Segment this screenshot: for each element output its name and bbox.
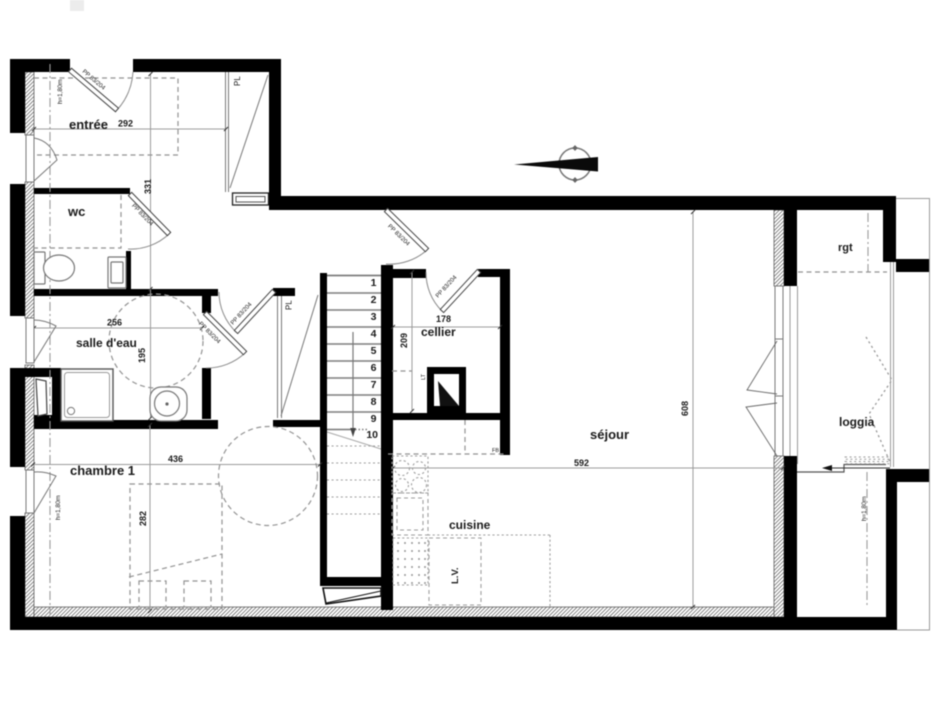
svg-text:4: 4 (371, 328, 377, 340)
svg-text:wc: wc (67, 204, 85, 219)
svg-text:PL: PL (233, 76, 242, 86)
svg-text:436: 436 (168, 454, 183, 464)
svg-text:5: 5 (371, 345, 377, 357)
svg-text:9: 9 (371, 413, 377, 425)
svg-text:rgt: rgt (838, 242, 853, 254)
svg-text:cellier: cellier (421, 325, 456, 339)
svg-text:8: 8 (371, 396, 377, 408)
svg-text:PL: PL (285, 300, 294, 310)
svg-text:chambre 1: chambre 1 (70, 463, 135, 478)
svg-text:2: 2 (371, 294, 377, 306)
svg-text:h=1,80m: h=1,80m (861, 496, 868, 521)
svg-text:331: 331 (143, 179, 153, 194)
svg-text:209: 209 (399, 333, 409, 348)
svg-text:178: 178 (436, 314, 451, 324)
svg-text:7: 7 (371, 379, 377, 391)
svg-text:1: 1 (371, 277, 377, 289)
svg-text:592: 592 (574, 458, 589, 468)
svg-text:256: 256 (107, 318, 122, 328)
svg-text:séjour: séjour (590, 427, 629, 442)
svg-text:LT: LT (421, 373, 427, 380)
svg-text:entrée: entrée (69, 117, 108, 132)
svg-text:cuisine: cuisine (449, 518, 491, 532)
svg-text:salle d'eau: salle d'eau (76, 336, 137, 350)
svg-text:L.V.: L.V. (450, 567, 461, 584)
svg-text:282: 282 (138, 511, 148, 526)
svg-text:FB: FB (492, 448, 499, 454)
svg-text:loggia: loggia (839, 415, 875, 429)
svg-text:10: 10 (366, 429, 378, 441)
svg-text:292: 292 (118, 119, 133, 129)
svg-text:h=1,80m: h=1,80m (55, 495, 62, 520)
svg-text:6: 6 (371, 362, 377, 374)
svg-text:608: 608 (680, 401, 690, 416)
svg-text:3: 3 (371, 311, 377, 323)
svg-text:195: 195 (137, 348, 147, 363)
svg-text:h=1,80m: h=1,80m (57, 79, 64, 104)
